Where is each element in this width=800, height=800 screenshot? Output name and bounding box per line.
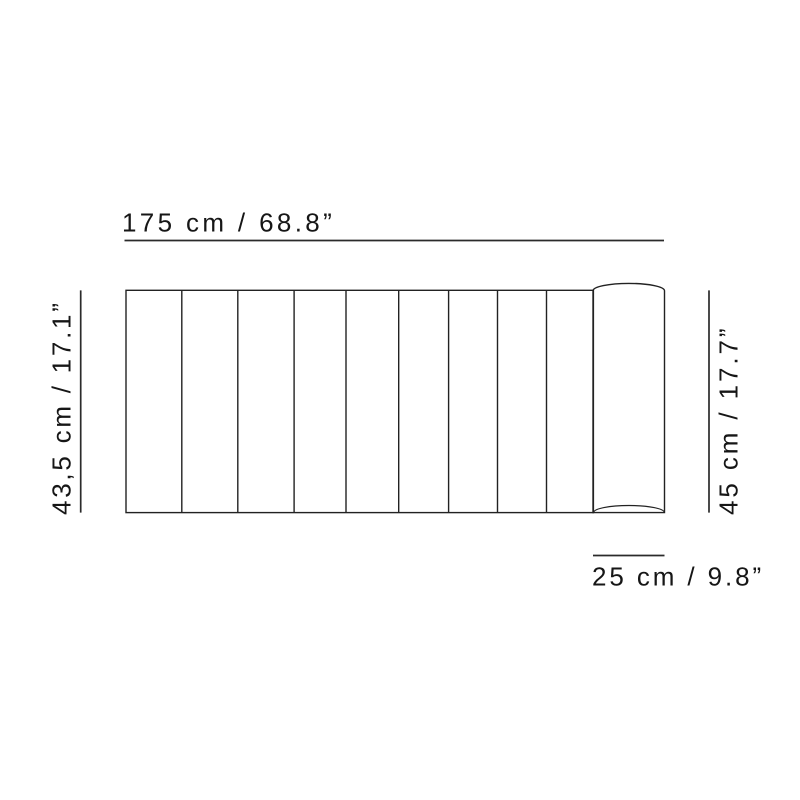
svg-text:43,5 cm / 17.1”: 43,5 cm / 17.1” [47,300,77,515]
svg-text:175 cm / 68.8”: 175 cm / 68.8” [122,208,335,238]
svg-text:45 cm / 17.7”: 45 cm / 17.7” [714,326,744,515]
svg-text:25 cm / 9.8”: 25 cm / 9.8” [592,562,764,592]
